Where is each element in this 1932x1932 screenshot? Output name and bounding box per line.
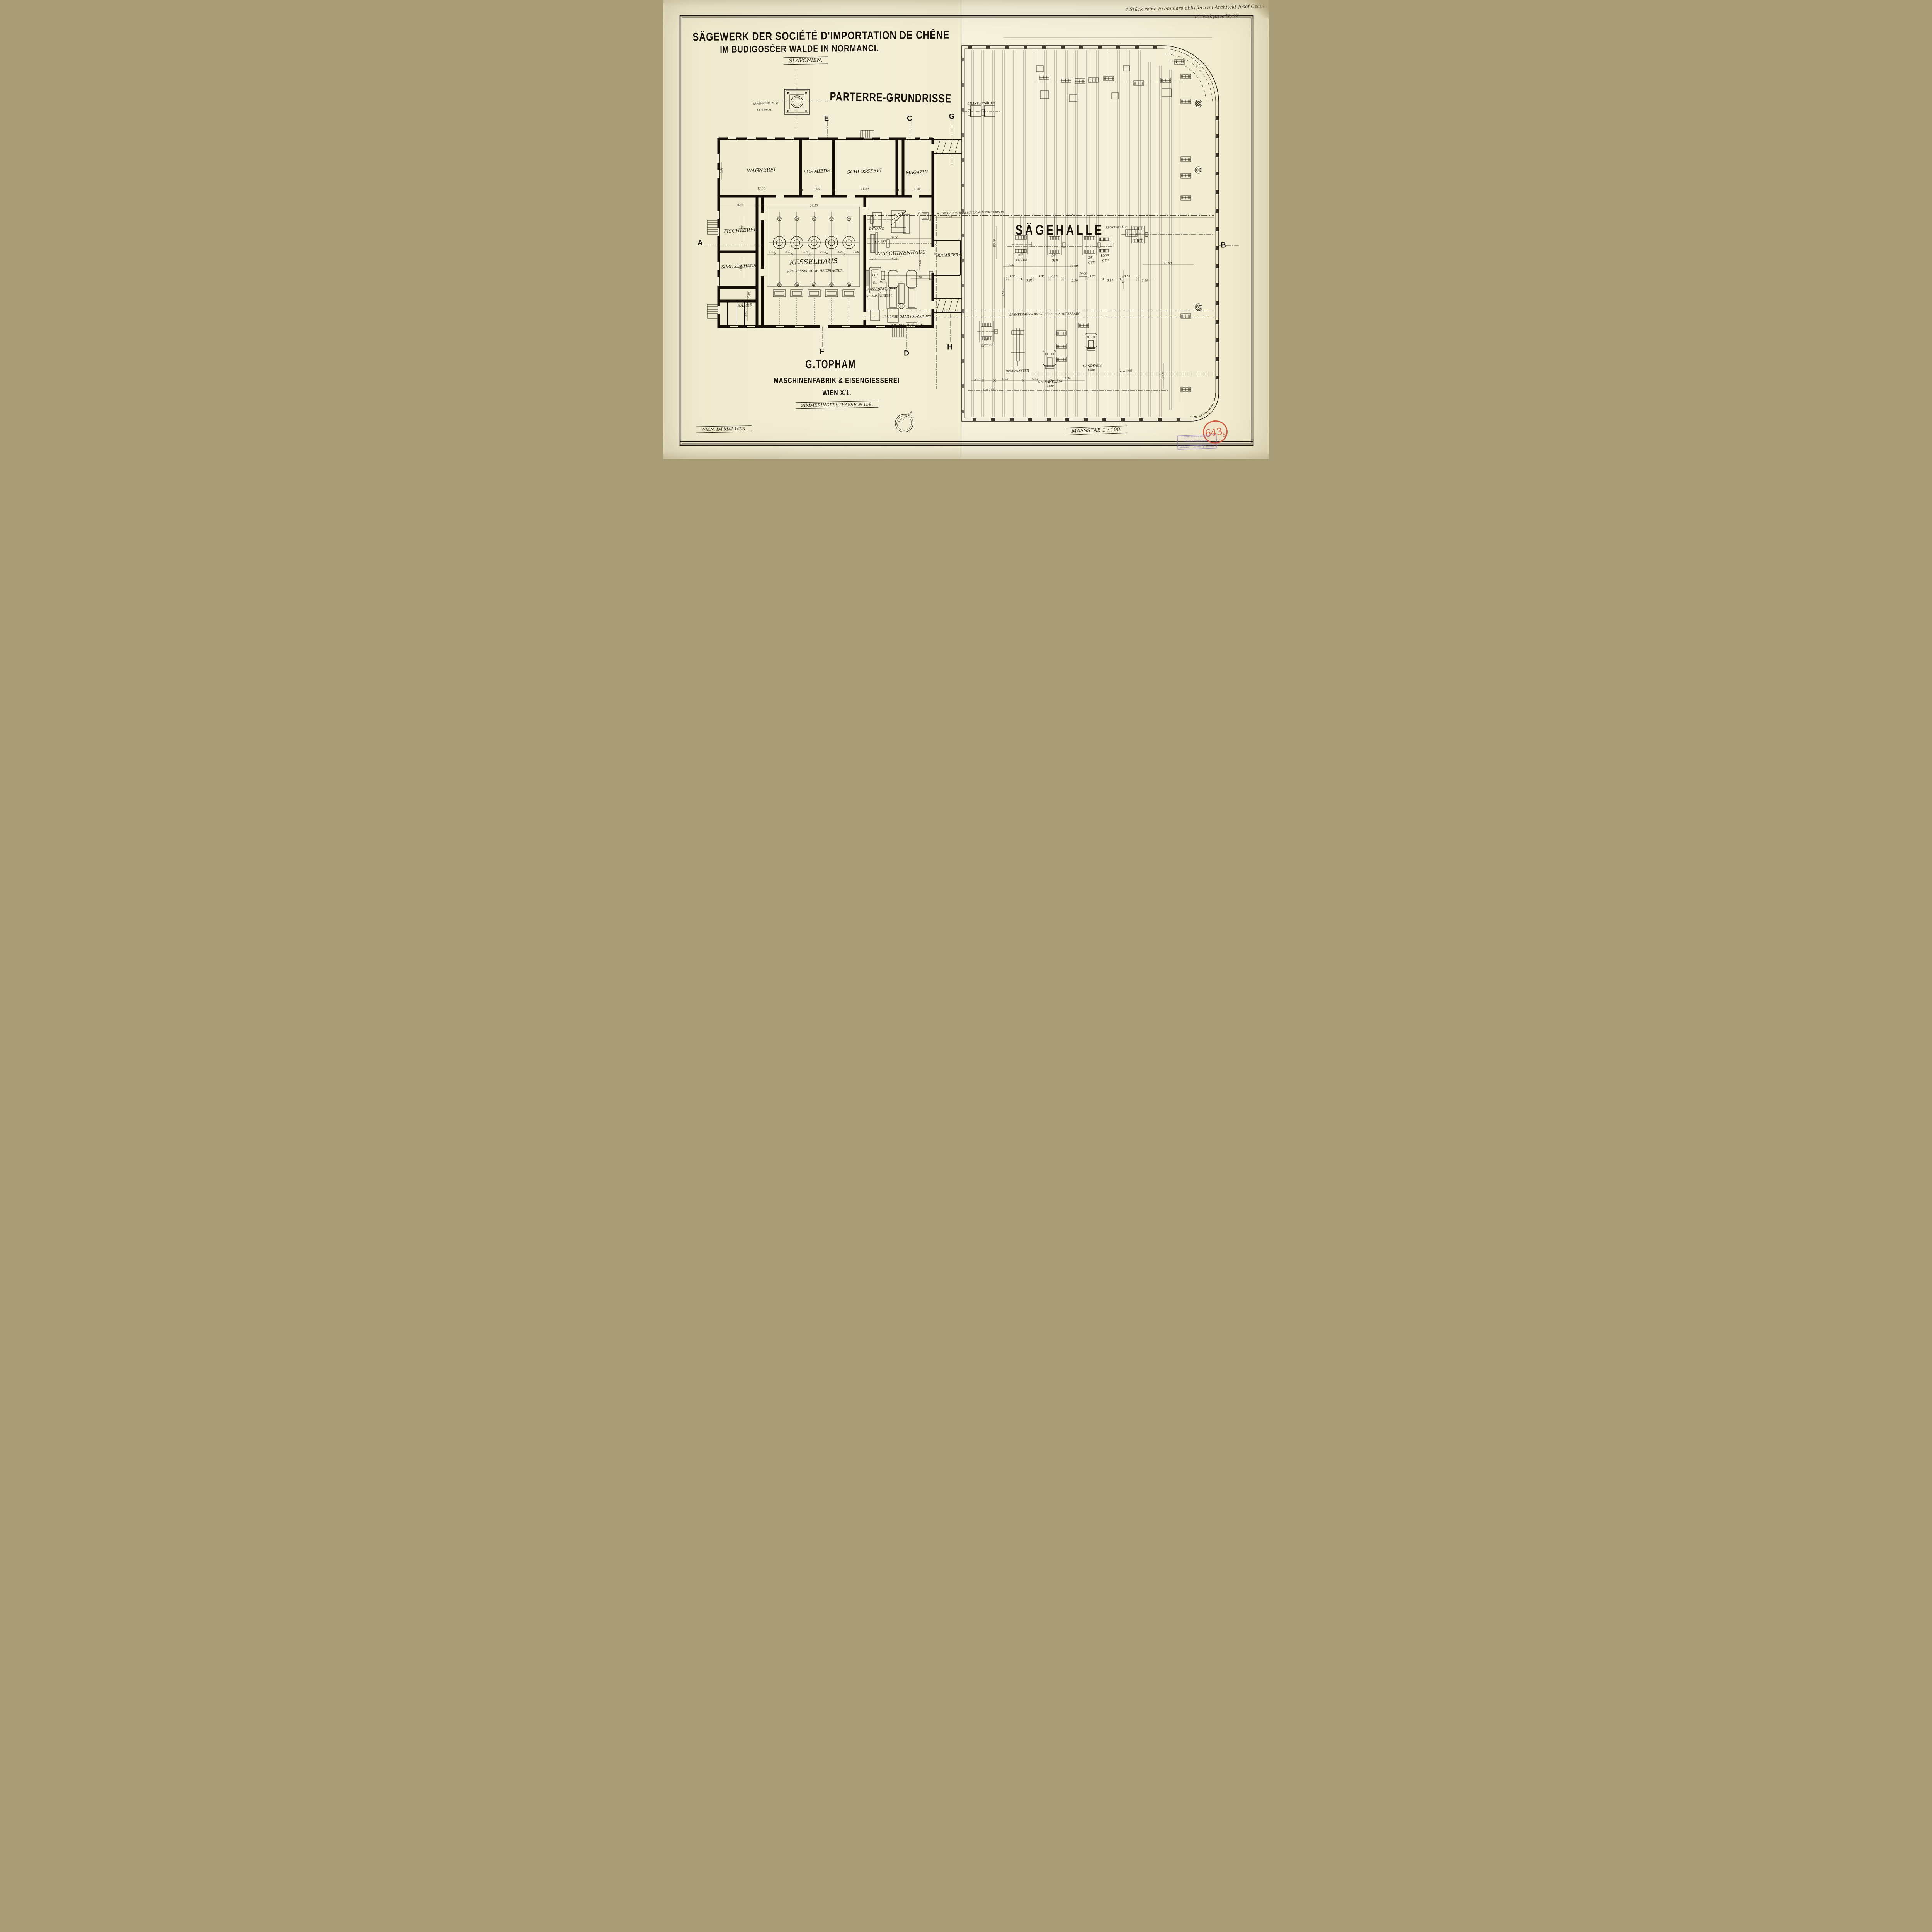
- plan-heading: PARTERRE-GRUNDRISSE: [830, 90, 951, 105]
- dim-mh-depth: 8.00: [919, 260, 922, 266]
- corridors: [933, 140, 962, 312]
- dim-hall-o: 3.60: [1142, 280, 1148, 282]
- gatter-15-30-label: GTR: [1102, 259, 1109, 262]
- dim-hall-e: 40.00: [1079, 273, 1087, 277]
- dim-boiler-spacing-b: 2.75: [785, 251, 791, 254]
- company-name: G.TOPHAM: [806, 359, 856, 371]
- dim-hall-r: 3.00: [974, 379, 980, 382]
- dim-tischlerei-depth: 8.90: [741, 225, 744, 231]
- axis-letter-b: B: [1221, 242, 1226, 249]
- dim-hall-l: 5.20: [1089, 276, 1095, 278]
- gatter-24-label: GTR: [1088, 261, 1095, 264]
- room-label-kesselhaus: KESSELHAUS: [789, 258, 838, 266]
- room-label-schaerferei: SCHÄRFEREI: [936, 253, 963, 258]
- dim-hall-g: 9.00: [1009, 276, 1015, 278]
- dim-mh-d: 1.80: [918, 211, 921, 217]
- kesselhaus-boilers: [769, 212, 859, 325]
- room-label-magazin: MAGAZIN: [906, 170, 928, 175]
- gatter-30-label: GTR: [1051, 259, 1058, 262]
- main-title-region: SLAVONIEN.: [783, 56, 828, 65]
- gr-bandsaege-size: 2200: [1047, 385, 1054, 388]
- hall-title: SÄGEHALLE: [1015, 224, 1104, 238]
- gatter-30-size: 30": [1051, 254, 1056, 257]
- shaft-speed-n170-corridor: n = 170: [934, 244, 937, 255]
- dim-hall-c: 13.00: [1006, 264, 1014, 267]
- dim-hall-u: 7.30: [1065, 378, 1071, 380]
- kleine-dampfmaschine-line1: KLEINE: [873, 281, 886, 284]
- dim-mh-a: 2.10: [869, 258, 876, 261]
- bandsaege-size: 1800: [1088, 369, 1095, 372]
- main-title-line2: IM BUDIGOSĆER WALDE IN NORMANCI.: [720, 44, 879, 54]
- dim-boiler-spacing-a: 1.60: [769, 251, 775, 254]
- machine-label-bandsaege: BANDSÄGE: [1083, 364, 1102, 368]
- dim-mh-e: 19.50: [885, 290, 888, 298]
- axis-letter-a: A: [697, 240, 703, 247]
- dim-hall-t: 5.20: [1032, 378, 1038, 381]
- dim-boiler-spacing-c: 2.75: [803, 251, 809, 254]
- dim-mh-b: 4.20: [891, 258, 897, 261]
- dim-hall-i: 5.60: [1038, 276, 1044, 278]
- dim-corridor: 5.00: [946, 216, 952, 218]
- axis-letter-c: C: [907, 115, 912, 122]
- axis-letter-e: E: [824, 115, 829, 122]
- company-type: MASCHINENFABRIK & EISENGIESSEREI: [774, 377, 900, 384]
- dim-hall-s: 6.00: [1002, 378, 1008, 381]
- gatter-24-size: 24": [1088, 256, 1093, 259]
- gatter-36-size: 36": [1018, 253, 1023, 257]
- museum-stamp-line1: Technické muzeum v Brně: [1177, 435, 1216, 439]
- dim-wagnerei-width: 13.00: [757, 188, 765, 190]
- handwritten-note-line2: III. Parkgasse No 10: [1195, 14, 1239, 19]
- date-signature: WIEN, IM MAI 1896.: [696, 425, 752, 433]
- gatter-42-label: GATTER: [981, 344, 994, 347]
- museum-stamp-col2: signatura: [1178, 446, 1190, 449]
- gatter-15-30-size: 15/30: [1100, 254, 1109, 257]
- dim-boiler-spacing-f: 1.60: [853, 251, 859, 254]
- dim-boiler-spacing-e: 2.75: [837, 251, 844, 254]
- dim-hall-j: 6.10: [1051, 276, 1058, 278]
- axis-lines: [704, 120, 1240, 349]
- dynamo-label: DYNAMO: [869, 227, 884, 230]
- gatter-18-label: GTR: [1136, 238, 1142, 241]
- dim-hall-d: 14.00: [1070, 265, 1078, 268]
- dim-schmiede-width: 4.95: [814, 188, 820, 191]
- dim-boiler-spacing-d: 2.75: [820, 251, 826, 254]
- dim-hall-n: 3.50: [1124, 276, 1130, 278]
- gatter-18-size: 18": [1136, 233, 1141, 236]
- dim-hall-f: 13.00: [1164, 262, 1172, 265]
- dim-hall-length: 39.10: [1065, 214, 1073, 217]
- grosse-dampfmaschine-label: GROSSE DAMPFMASCHINE: [884, 315, 932, 319]
- gatter-42-size: 42": [983, 338, 988, 342]
- axis-letter-d: D: [904, 350, 909, 357]
- dim-hall-p: 12.00: [1122, 276, 1125, 284]
- dim-kesselhaus-width: 16.20: [810, 205, 818, 207]
- dim-hall-k: 2.30: [1071, 280, 1078, 282]
- dim-hall-h: 3.60: [1026, 280, 1032, 282]
- dim-magazin-width: 4.00: [914, 188, 920, 191]
- museum-stamp-col1: přír. čís.: [1190, 445, 1203, 449]
- grosse-dampfmaschine-specs: CIL.475. HUB 850.: [891, 324, 923, 328]
- dim-top-band-depth: 9.50: [721, 167, 723, 173]
- dim-maschinenhaus-width: 10.00: [890, 237, 898, 240]
- blueprint-sheet: 4 Stück reine Exemplare abliefern an Arc…: [663, 0, 1269, 459]
- stamp-suffix: S: [1222, 432, 1226, 438]
- chimney-note-diameter: 1300 DIAM.: [757, 109, 772, 112]
- museum-stamp: Technické muzeum v Brně Sbírka výkresů a…: [1177, 434, 1217, 450]
- dim-hall-m: 3.80: [1107, 280, 1113, 282]
- museum-stamp-number: 8460/44: [1203, 445, 1216, 448]
- company-city: WIEN X/1.: [822, 389, 851, 396]
- kleine-dampfmaschine-specs: CIL.450. HUB 950: [865, 294, 892, 298]
- gatter-36-label: GATTER: [1015, 258, 1027, 262]
- dim-hall-q: 12.00: [1162, 372, 1165, 380]
- dim-hall-a: 59.10: [994, 239, 997, 247]
- dim-baeder-c: 2.50: [745, 311, 748, 317]
- main-title-line1: SÄGEWERK DER SOCIÉTÉ D'IMPORTATION DE CH…: [692, 30, 949, 43]
- axis-letter-f: F: [820, 348, 824, 355]
- axis-letter-g: G: [949, 113, 955, 121]
- axis-letter-h: H: [947, 344, 952, 351]
- dim-schlosserei-width: 11.00: [861, 188, 869, 191]
- dim-mh-c: 3.70: [916, 277, 922, 279]
- dim-tischlerei-width: 6.45: [737, 204, 743, 207]
- shaft-speed-n170-bottom: n = 170: [983, 388, 994, 391]
- dim-hall-b: 28.50: [1002, 289, 1005, 296]
- shaft-speed-n190: n = 190: [875, 240, 886, 243]
- museum-stamp-line2: Sbírka výkresů a plánů: [1178, 440, 1216, 444]
- dim-spritzenhaus-depth: 4.00: [740, 265, 743, 271]
